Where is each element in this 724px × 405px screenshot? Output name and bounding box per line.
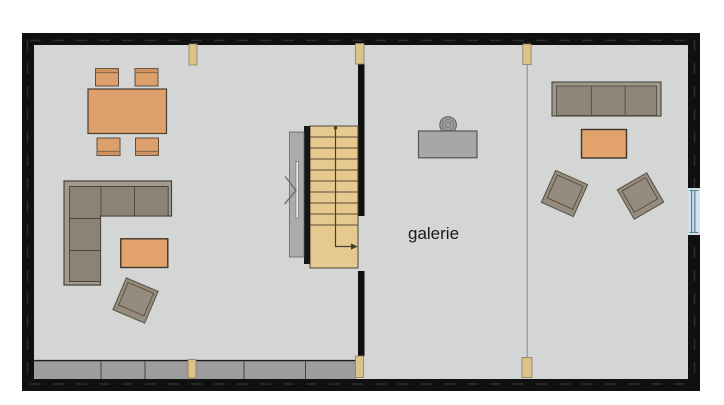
svg-text:galerie: galerie <box>408 224 459 243</box>
